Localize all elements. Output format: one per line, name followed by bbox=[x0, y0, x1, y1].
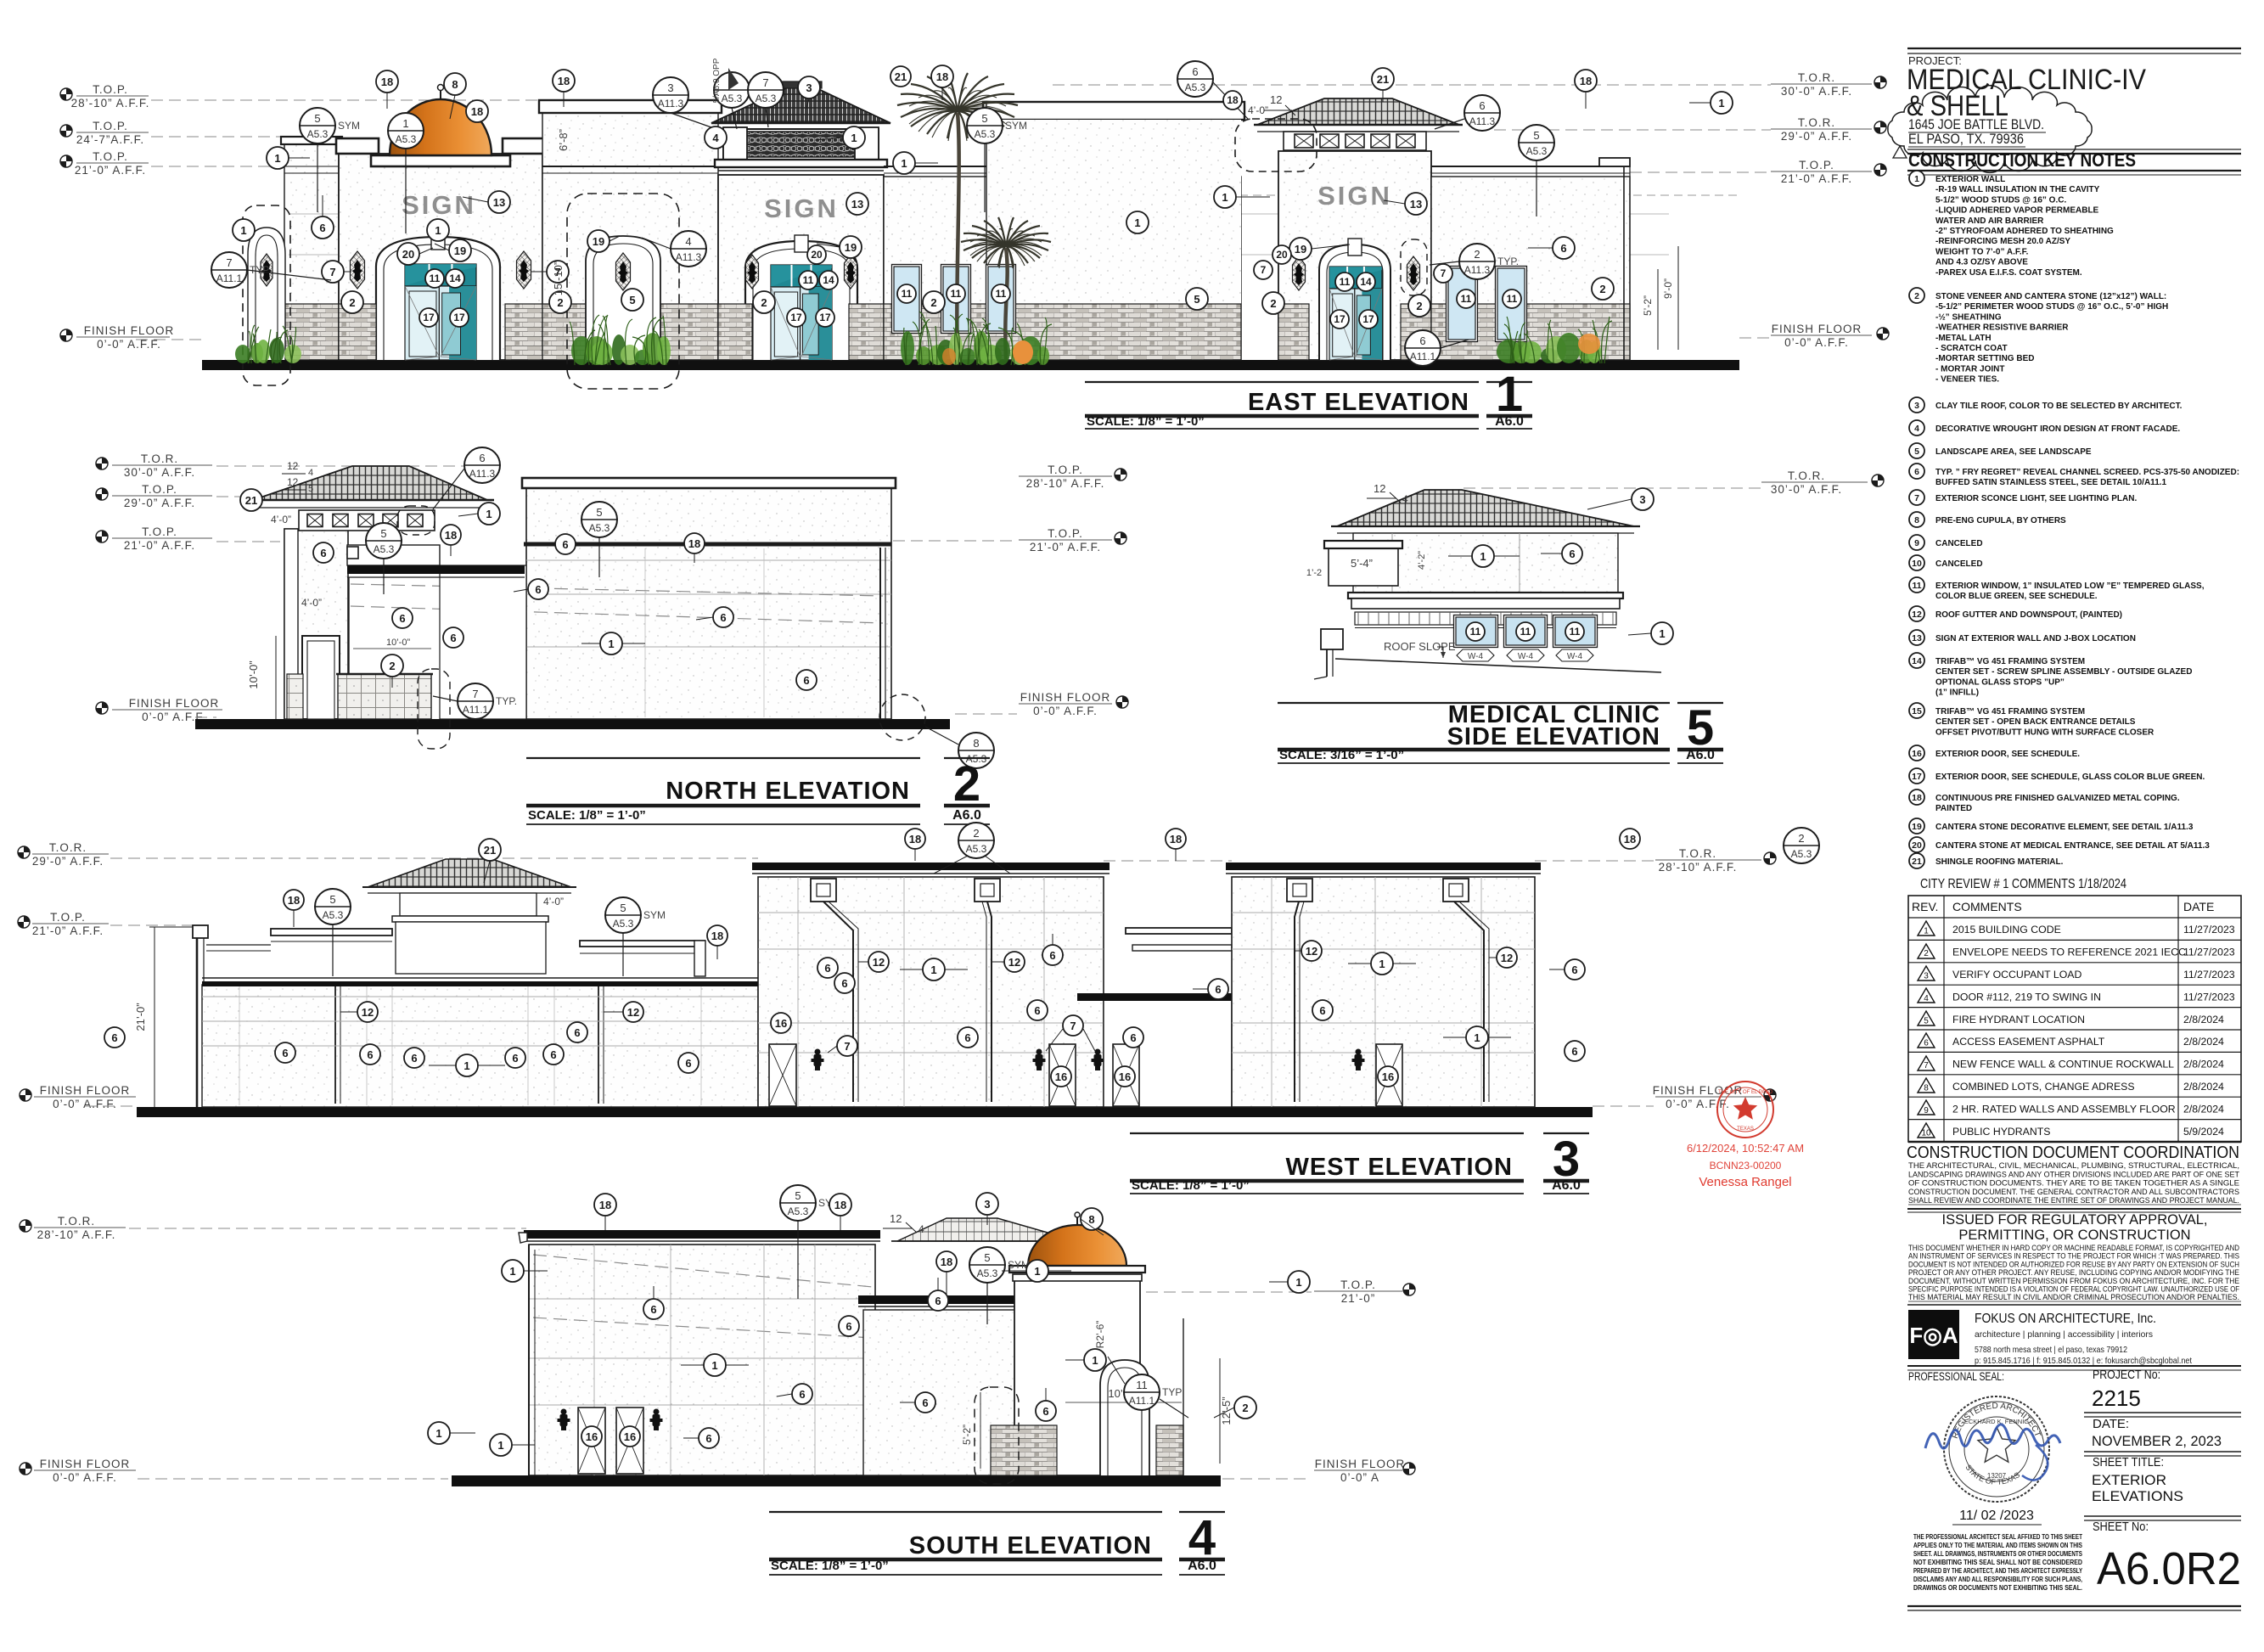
svg-text:29’-0” A.F.F.: 29’-0” A.F.F. bbox=[124, 497, 195, 509]
svg-text:4: 4 bbox=[1914, 424, 1919, 434]
svg-text:4: 4 bbox=[712, 132, 719, 144]
svg-text:3: 3 bbox=[984, 1198, 990, 1211]
svg-text:2: 2 bbox=[953, 756, 980, 812]
svg-text:6/12/2024, 10:52:47 AM: 6/12/2024, 10:52:47 AM bbox=[1687, 1142, 1804, 1155]
svg-text:11: 11 bbox=[1570, 626, 1581, 638]
svg-text:6: 6 bbox=[1049, 949, 1055, 962]
svg-text:12: 12 bbox=[1008, 956, 1020, 969]
svg-text:SIGN: SIGN bbox=[402, 190, 476, 220]
svg-text:A11.1: A11.1 bbox=[1129, 1395, 1155, 1407]
svg-text:5: 5 bbox=[1924, 1016, 1929, 1025]
svg-text:FINISH FLOOR: FINISH FLOOR bbox=[1020, 691, 1111, 704]
svg-text:WATER AND AIR BARRIER: WATER AND AIR BARRIER bbox=[1935, 216, 2044, 226]
svg-text:13: 13 bbox=[493, 196, 505, 209]
svg-text:A11.3: A11.3 bbox=[658, 98, 684, 110]
svg-text:5788 north mesa street |: 5788 north mesa street | el paso, texas … bbox=[1975, 1345, 2127, 1355]
svg-text:12: 12 bbox=[287, 476, 299, 488]
svg-text:16: 16 bbox=[1912, 749, 1922, 759]
svg-text:28’-10” A.F.F.: 28’-10” A.F.F. bbox=[1026, 477, 1105, 490]
svg-text:16: 16 bbox=[1055, 1070, 1067, 1083]
svg-text:SIDE ELEVATION: SIDE ELEVATION bbox=[1447, 723, 1660, 750]
svg-text:7: 7 bbox=[226, 256, 232, 269]
svg-text:A6.0: A6.0 bbox=[1188, 1559, 1216, 1573]
svg-text:WEST ELEVATION: WEST ELEVATION bbox=[1286, 1154, 1513, 1181]
svg-text:SCALE: 1/8” = 1’-0”: SCALE: 1/8” = 1’-0” bbox=[528, 808, 646, 823]
svg-text:FINISH FLOOR: FINISH FLOOR bbox=[84, 324, 175, 337]
svg-text:1: 1 bbox=[274, 152, 280, 165]
svg-text:4’-0”: 4’-0” bbox=[543, 896, 564, 907]
svg-text:SPECIFIC PURPOSE INTENDED IS A: SPECIFIC PURPOSE INTENDED IS A VIOLATION… bbox=[1908, 1285, 2240, 1294]
svg-text:A11.1: A11.1 bbox=[463, 704, 489, 716]
svg-text:EXTERIOR WALL: EXTERIOR WALL bbox=[1935, 175, 2005, 184]
svg-text:6: 6 bbox=[650, 1303, 656, 1316]
svg-text:6: 6 bbox=[685, 1057, 691, 1070]
svg-text:T.O.R.: T.O.R. bbox=[49, 841, 87, 854]
svg-text:T.O.R.: T.O.R. bbox=[141, 452, 178, 465]
svg-text:WEIGHT TO 7’-0” A.F.F.: WEIGHT TO 7’-0” A.F.F. bbox=[1935, 247, 2029, 256]
svg-text:DOCUMENT IS NOT INTENDED OR AU: DOCUMENT IS NOT INTENDED OR AUTHORIZED F… bbox=[1908, 1260, 2239, 1268]
svg-text:PRE-ENG CUPULA, BY OTHERS: PRE-ENG CUPULA, BY OTHERS bbox=[1935, 516, 2066, 525]
svg-text:12’-5”: 12’-5” bbox=[1220, 1396, 1233, 1424]
svg-text:18: 18 bbox=[1912, 793, 1922, 803]
svg-text:OFFSET PIVOT/BUTT HUNG WITH SU: OFFSET PIVOT/BUTT HUNG WITH SURFACE CLOS… bbox=[1935, 728, 2154, 737]
svg-text:CANTERA STONE DECORATIVE ELEME: CANTERA STONE DECORATIVE ELEMENT, SEE DE… bbox=[1935, 823, 2194, 832]
svg-text:A5.3: A5.3 bbox=[396, 133, 417, 145]
svg-text:T.O.P.: T.O.P. bbox=[93, 83, 128, 96]
svg-text:6: 6 bbox=[1914, 467, 1919, 477]
svg-text:5’-2”: 5’-2” bbox=[1642, 295, 1654, 316]
svg-text:1: 1 bbox=[711, 1359, 717, 1372]
svg-text:2/8/2024: 2/8/2024 bbox=[2183, 1103, 2224, 1115]
svg-text:EXTERIOR WINDOW, 1” INSULATED: EXTERIOR WINDOW, 1” INSULATED LOW ”E” TE… bbox=[1935, 582, 2205, 591]
svg-text:DISCLAIMS ANY AND ALL RESPONSI: DISCLAIMS ANY AND ALL RESPONSIBILITY FOR… bbox=[1913, 1576, 2082, 1583]
svg-text:T.O.P.: T.O.P. bbox=[142, 525, 177, 538]
svg-text:1: 1 bbox=[435, 224, 441, 237]
svg-text:FINISH FLOOR: FINISH FLOOR bbox=[40, 1084, 131, 1097]
svg-text:FOKUS ON ARCHITECTURE, Inc.: FOKUS ON ARCHITECTURE, Inc. bbox=[1975, 1312, 2156, 1326]
svg-text:2: 2 bbox=[1599, 283, 1605, 295]
svg-text:-LIQUID ADHERED VAPOR PERMEABL: -LIQUID ADHERED VAPOR PERMEABLE bbox=[1935, 206, 2099, 216]
svg-text:DRAWINGS OR DOCUMENTS NOT EXHI: DRAWINGS OR DOCUMENTS NOT EXHIBITING THI… bbox=[1913, 1584, 2082, 1592]
svg-text:11: 11 bbox=[1340, 276, 1351, 288]
svg-text:TRIFAB™ VG 451 FRAMING SYSTEM: TRIFAB™ VG 451 FRAMING SYSTEM bbox=[1935, 657, 2085, 666]
svg-text:6: 6 bbox=[1569, 548, 1575, 560]
svg-text:NOT EXHIBITING THIS SEAL SHALL: NOT EXHIBITING THIS SEAL SHALL NOT BE CO… bbox=[1913, 1559, 2082, 1566]
svg-text:A11.3: A11.3 bbox=[1469, 115, 1496, 127]
svg-text:16: 16 bbox=[775, 1017, 787, 1030]
svg-text:16: 16 bbox=[586, 1430, 598, 1443]
svg-text:12: 12 bbox=[1912, 610, 1922, 620]
svg-text:12: 12 bbox=[287, 460, 299, 472]
svg-text:21’-0” A.F.F.: 21’-0” A.F.F. bbox=[32, 924, 104, 937]
svg-text:12: 12 bbox=[890, 1212, 902, 1225]
svg-text:A5.3: A5.3 bbox=[1185, 81, 1206, 93]
svg-text:18: 18 bbox=[936, 70, 948, 83]
svg-text:COMBINED LOTS, CHANGE ADRESS: COMBINED LOTS, CHANGE ADRESS bbox=[1952, 1081, 2135, 1093]
svg-text:1: 1 bbox=[1034, 1265, 1040, 1278]
svg-text:28’-10” A.F.F.: 28’-10” A.F.F. bbox=[37, 1228, 116, 1241]
svg-text:NOVEMBER 2, 2023: NOVEMBER 2, 2023 bbox=[2092, 1433, 2222, 1449]
svg-text:EXTERIOR SCONCE LIGHT, SEE LIG: EXTERIOR SCONCE LIGHT, SEE LIGHTING PLAN… bbox=[1935, 494, 2137, 503]
svg-text:11/27/2023: 11/27/2023 bbox=[2183, 969, 2235, 981]
svg-text:EXTERIOR DOOR, SEE SCHEDULE.: EXTERIOR DOOR, SEE SCHEDULE. bbox=[1935, 750, 2080, 759]
svg-text:11: 11 bbox=[1136, 1379, 1148, 1391]
svg-text:17: 17 bbox=[819, 312, 831, 323]
svg-text:T.O.P.: T.O.P. bbox=[1048, 464, 1083, 476]
svg-text:DECORATIVE WROUGHT IRON DESIGN: DECORATIVE WROUGHT IRON DESIGN AT FRONT … bbox=[1935, 424, 2180, 434]
svg-text:0’-0” A.F.F.: 0’-0” A.F.F. bbox=[1666, 1098, 1730, 1110]
svg-text:BUFFED SATIN STAINLESS STEEL,: BUFFED SATIN STAINLESS STEEL, SEE DETAIL… bbox=[1935, 478, 2167, 487]
svg-text:1: 1 bbox=[497, 1439, 503, 1452]
svg-text:SYM: SYM bbox=[338, 120, 360, 132]
svg-text:A5.3: A5.3 bbox=[589, 522, 610, 534]
svg-text:1: 1 bbox=[1295, 1276, 1301, 1289]
svg-text:2: 2 bbox=[1416, 300, 1422, 312]
svg-text:3: 3 bbox=[667, 81, 673, 94]
svg-text:SCALE: 3/16” = 1’-0”: SCALE: 3/16” = 1’-0” bbox=[1279, 748, 1404, 762]
svg-text:A6.0R2: A6.0R2 bbox=[2097, 1543, 2241, 1594]
svg-text:A5.3: A5.3 bbox=[975, 128, 996, 140]
svg-text:6: 6 bbox=[1479, 99, 1485, 112]
svg-text:12: 12 bbox=[1501, 952, 1513, 964]
svg-text:3: 3 bbox=[1924, 972, 1929, 981]
svg-text:10’-0”: 10’-0” bbox=[247, 660, 260, 688]
svg-text:18: 18 bbox=[599, 1199, 611, 1211]
svg-text:18: 18 bbox=[471, 105, 483, 118]
svg-text:5: 5 bbox=[620, 902, 626, 914]
svg-text:6: 6 bbox=[535, 583, 541, 596]
svg-text:9: 9 bbox=[1924, 1106, 1929, 1115]
svg-text:29’-0” A.F.F.: 29’-0” A.F.F. bbox=[1781, 130, 1852, 143]
svg-text:CONTINUOUS PRE FINISHED GALVAN: CONTINUOUS PRE FINISHED GALVANIZED METAL… bbox=[1935, 794, 2180, 803]
svg-text:BCNN23-00200: BCNN23-00200 bbox=[1710, 1160, 1782, 1172]
svg-text:12: 12 bbox=[873, 956, 885, 969]
svg-text:6: 6 bbox=[399, 612, 405, 625]
svg-text:2 HR. RATED WALLS AND ASSEMBLY: 2 HR. RATED WALLS AND ASSEMBLY FLOOR bbox=[1952, 1103, 2176, 1115]
svg-text:T.O.R.: T.O.R. bbox=[1788, 469, 1825, 482]
svg-text:5-1/2” WOOD STUDS @ 16” O.C.: 5-1/2” WOOD STUDS @ 16” O.C. bbox=[1935, 195, 2066, 205]
svg-text:DATE:: DATE: bbox=[2093, 1417, 2129, 1431]
svg-text:- MORTAR JOINT: - MORTAR JOINT bbox=[1935, 364, 2004, 374]
svg-text:SCALE: 1/8” = 1’-0”: SCALE: 1/8” = 1’-0” bbox=[1087, 414, 1205, 429]
svg-text:6: 6 bbox=[1042, 1405, 1048, 1418]
svg-text:1: 1 bbox=[1659, 627, 1665, 640]
svg-text:6: 6 bbox=[319, 222, 325, 234]
svg-text:-WEATHER RESISTIVE BARRIER: -WEATHER RESISTIVE BARRIER bbox=[1935, 323, 2069, 333]
svg-text:19: 19 bbox=[845, 241, 857, 254]
svg-text:2: 2 bbox=[973, 827, 979, 840]
svg-text:6: 6 bbox=[1419, 334, 1425, 347]
svg-text:12: 12 bbox=[1306, 945, 1317, 958]
svg-text:2/8/2024: 2/8/2024 bbox=[2183, 1081, 2224, 1093]
svg-text:REV.: REV. bbox=[1912, 900, 1938, 913]
svg-text:5: 5 bbox=[795, 1189, 801, 1202]
svg-text:OPTIONAL GLASS STOPS ”UP”: OPTIONAL GLASS STOPS ”UP” bbox=[1935, 677, 2065, 687]
svg-text:5/9/2024: 5/9/2024 bbox=[2183, 1126, 2224, 1138]
svg-text:SIGN: SIGN bbox=[1317, 181, 1392, 211]
svg-text:A5.3: A5.3 bbox=[966, 843, 987, 855]
svg-text:6: 6 bbox=[803, 674, 809, 687]
svg-text:6: 6 bbox=[479, 452, 485, 464]
svg-text:11/ 02 /2023: 11/ 02 /2023 bbox=[1959, 1509, 2034, 1523]
svg-text:14: 14 bbox=[449, 273, 461, 284]
svg-text:2: 2 bbox=[389, 660, 395, 672]
svg-text:13: 13 bbox=[1410, 198, 1422, 211]
svg-text:4’-2”: 4’-2” bbox=[1417, 551, 1427, 570]
svg-text:2: 2 bbox=[1242, 1402, 1248, 1414]
svg-text:FINISH FLOOR: FINISH FLOOR bbox=[1772, 323, 1862, 335]
svg-text:W-4: W-4 bbox=[1518, 652, 1534, 661]
svg-text:W-4: W-4 bbox=[1468, 652, 1484, 661]
svg-text:1: 1 bbox=[435, 1427, 441, 1440]
svg-text:6: 6 bbox=[282, 1047, 288, 1059]
svg-text:6: 6 bbox=[512, 1052, 518, 1065]
svg-text:2015 BUILDING CODE: 2015 BUILDING CODE bbox=[1952, 924, 2061, 936]
svg-text:F◎A: F◎A bbox=[1909, 1323, 1958, 1348]
svg-text:21’-0”: 21’-0” bbox=[134, 1003, 147, 1031]
svg-text:11: 11 bbox=[430, 273, 441, 284]
svg-text:6: 6 bbox=[1130, 1031, 1136, 1044]
svg-text:6: 6 bbox=[550, 1048, 556, 1061]
svg-text:CONSTRUCTION DOCUMENT COORDINA: CONSTRUCTION DOCUMENT COORDINATION bbox=[1907, 1143, 2239, 1162]
svg-text:APPLIES ONLY TO THE MATERIAL A: APPLIES ONLY TO THE MATERIAL AND ITEMS S… bbox=[1913, 1542, 2083, 1549]
svg-text:TEXAS: TEXAS bbox=[1737, 1127, 1754, 1132]
svg-text:ROOF SLOPE: ROOF SLOPE bbox=[1384, 640, 1456, 653]
svg-text:14: 14 bbox=[1360, 276, 1372, 288]
svg-text:7: 7 bbox=[1070, 1020, 1076, 1032]
svg-text:21’-0” A.F.F.: 21’-0” A.F.F. bbox=[75, 164, 146, 177]
svg-text:11/27/2023: 11/27/2023 bbox=[2183, 991, 2235, 1003]
svg-text:11: 11 bbox=[1470, 626, 1481, 638]
svg-text:2215: 2215 bbox=[2092, 1385, 2141, 1411]
svg-text:12: 12 bbox=[1374, 482, 1385, 495]
svg-text:5: 5 bbox=[596, 506, 602, 519]
svg-text:6: 6 bbox=[964, 1031, 970, 1044]
svg-text:(1” INFILL): (1” INFILL) bbox=[1935, 688, 1979, 698]
svg-text:2: 2 bbox=[1914, 291, 1919, 301]
svg-text:4’-0”: 4’-0” bbox=[271, 514, 291, 525]
svg-text:ROOF GUTTER AND DOWNSPOUT, (PA: ROOF GUTTER AND DOWNSPOUT, (PAINTED) bbox=[1935, 610, 2122, 620]
svg-text:2/8/2024: 2/8/2024 bbox=[2183, 1059, 2224, 1070]
svg-text:R2’-6”: R2’-6” bbox=[1094, 1321, 1106, 1349]
svg-text:21’-0”: 21’-0” bbox=[1341, 1292, 1376, 1305]
svg-text:11/27/2023: 11/27/2023 bbox=[2183, 947, 2235, 958]
svg-text:6: 6 bbox=[705, 1432, 711, 1445]
svg-text:5: 5 bbox=[314, 112, 320, 125]
svg-text:-MORTAR SETTING BED: -MORTAR SETTING BED bbox=[1935, 354, 2034, 363]
svg-text:2: 2 bbox=[930, 296, 936, 309]
svg-text:6: 6 bbox=[1192, 65, 1198, 78]
svg-text:EXTERIOR: EXTERIOR bbox=[2092, 1472, 2166, 1488]
svg-text:18: 18 bbox=[834, 1199, 846, 1211]
svg-text:21’-0” A.F.F.: 21’-0” A.F.F. bbox=[124, 539, 195, 552]
svg-text:13: 13 bbox=[851, 198, 863, 211]
svg-text:1: 1 bbox=[240, 224, 246, 237]
svg-text:2: 2 bbox=[1798, 832, 1804, 845]
svg-text:THIS DOCUMENT WHETHER IN HARD: THIS DOCUMENT WHETHER IN HARD COPY OR MA… bbox=[1908, 1244, 2239, 1252]
svg-text:11: 11 bbox=[803, 274, 814, 286]
svg-text:6: 6 bbox=[1560, 242, 1566, 255]
svg-text:T.O.P.: T.O.P. bbox=[1048, 527, 1083, 540]
svg-text:A5.3: A5.3 bbox=[323, 909, 344, 921]
svg-text:TYP.: TYP. bbox=[496, 695, 517, 707]
svg-text:15’-10”: 15’-10” bbox=[552, 261, 565, 295]
svg-text:PAINTED: PAINTED bbox=[1935, 804, 1972, 813]
svg-text:SHALL REVIEW AND COORDINATE TH: SHALL REVIEW AND COORDINATE THE ENTIRE S… bbox=[1908, 1196, 2239, 1205]
svg-text:10: 10 bbox=[1921, 1128, 1931, 1138]
svg-text:1: 1 bbox=[1718, 97, 1724, 110]
svg-text:2: 2 bbox=[1474, 248, 1480, 261]
svg-text:CANCELED: CANCELED bbox=[1935, 559, 1983, 569]
svg-text:6: 6 bbox=[824, 962, 830, 975]
svg-text:FINISH FLOOR: FINISH FLOOR bbox=[1315, 1458, 1406, 1470]
svg-text:architecture | planning: architecture | planning | accessibility … bbox=[1975, 1329, 2153, 1340]
svg-text:6: 6 bbox=[841, 977, 847, 990]
svg-text:30’-0” A.F.F.: 30’-0” A.F.F. bbox=[124, 466, 195, 479]
svg-text:A6.0: A6.0 bbox=[1686, 748, 1715, 762]
svg-text:24’-7”A.F.F.: 24’-7”A.F.F. bbox=[76, 133, 144, 146]
svg-text:PROJECT OR ANY OTHER PROJECT.: PROJECT OR ANY OTHER PROJECT. ANY REUSE,… bbox=[1908, 1268, 2239, 1277]
svg-text:11: 11 bbox=[1461, 293, 1472, 305]
svg-text:1: 1 bbox=[1924, 927, 1929, 936]
svg-text:- SCRATCH COAT: - SCRATCH COAT bbox=[1935, 344, 2008, 353]
svg-text:CONSTRUCTION KEY NOTES: CONSTRUCTION KEY NOTES bbox=[1908, 149, 2136, 171]
svg-text:2: 2 bbox=[761, 296, 767, 309]
svg-text:-REINFORCING MESH 20.0 AZ/SY: -REINFORCING MESH 20.0 AZ/SY bbox=[1935, 237, 2070, 246]
svg-text:THE PROFESSIONAL ARCHITECT SEA: THE PROFESSIONAL ARCHITECT SEAL AFFIXED … bbox=[1913, 1533, 2082, 1541]
svg-text:5/A6.0 OPP: 5/A6.0 OPP bbox=[712, 58, 722, 103]
svg-text:2: 2 bbox=[1270, 297, 1276, 310]
svg-text:11: 11 bbox=[996, 288, 1007, 300]
svg-text:0’-0” A.F.F.: 0’-0” A.F.F. bbox=[53, 1098, 117, 1110]
svg-text:20: 20 bbox=[402, 248, 414, 261]
svg-text:20: 20 bbox=[1276, 249, 1288, 261]
svg-text:8: 8 bbox=[1924, 1084, 1929, 1093]
svg-text:8: 8 bbox=[1914, 515, 1919, 525]
svg-text:9: 9 bbox=[1914, 538, 1919, 548]
svg-text:A11.1: A11.1 bbox=[216, 273, 243, 284]
svg-text:-½” SHEATHING: -½” SHEATHING bbox=[1935, 312, 2002, 322]
svg-text:6: 6 bbox=[111, 1031, 117, 1044]
svg-text:5: 5 bbox=[1914, 447, 1919, 457]
svg-text:6: 6 bbox=[1924, 1039, 1929, 1048]
svg-text:21’-0” A.F.F.: 21’-0” A.F.F. bbox=[1030, 541, 1101, 553]
svg-text:17: 17 bbox=[790, 312, 802, 323]
svg-text:SIGN: SIGN bbox=[764, 194, 839, 223]
svg-text:LANDSCAPE AREA, SEE LANDSCAPE: LANDSCAPE AREA, SEE LANDSCAPE bbox=[1935, 447, 2092, 457]
svg-text:A11.3: A11.3 bbox=[1464, 264, 1491, 276]
svg-text:FINISH FLOOR: FINISH FLOOR bbox=[40, 1458, 131, 1470]
svg-text:6: 6 bbox=[1034, 1004, 1040, 1017]
svg-text:7: 7 bbox=[1261, 264, 1267, 276]
svg-text:2/8/2024: 2/8/2024 bbox=[2183, 1014, 2224, 1025]
svg-text:17: 17 bbox=[1912, 772, 1922, 782]
svg-text:7: 7 bbox=[762, 76, 768, 89]
svg-text:A5.3: A5.3 bbox=[374, 543, 395, 555]
svg-text:4: 4 bbox=[685, 235, 691, 248]
svg-text:19: 19 bbox=[593, 235, 604, 248]
svg-text:18: 18 bbox=[1624, 833, 1636, 846]
svg-text:1: 1 bbox=[930, 964, 936, 976]
svg-text:A5.3: A5.3 bbox=[756, 93, 777, 104]
svg-text:6: 6 bbox=[1215, 983, 1221, 996]
svg-text:SHEET. ALL DRAWINGS, INSTRUMEN: SHEET. ALL DRAWINGS, INSTRUMENTS OR OTHE… bbox=[1913, 1550, 2083, 1558]
svg-text:A6.0: A6.0 bbox=[1552, 1178, 1581, 1193]
svg-text:TYP. ” FRY REGRET” REVEAL CHAN: TYP. ” FRY REGRET” REVEAL CHANNEL SCREED… bbox=[1935, 468, 2239, 477]
svg-text:6’-8”: 6’-8” bbox=[557, 129, 570, 151]
svg-text:12: 12 bbox=[1270, 93, 1282, 106]
svg-text:12: 12 bbox=[362, 1006, 374, 1019]
svg-text:16: 16 bbox=[624, 1430, 636, 1443]
svg-text:8: 8 bbox=[1088, 1213, 1094, 1226]
svg-text:3: 3 bbox=[1914, 401, 1919, 411]
svg-text:6: 6 bbox=[1571, 1045, 1577, 1058]
svg-text:CLAY TILE ROOF, COLOR TO BE SE: CLAY TILE ROOF, COLOR TO BE SELECTED BY … bbox=[1935, 402, 2183, 411]
svg-text:5: 5 bbox=[1533, 129, 1539, 142]
svg-text:CANCELED: CANCELED bbox=[1935, 539, 1983, 548]
svg-text:16: 16 bbox=[1119, 1070, 1131, 1083]
svg-text:T.O.R.: T.O.R. bbox=[1798, 116, 1835, 129]
svg-text:EAST ELEVATION: EAST ELEVATION bbox=[1248, 389, 1469, 416]
svg-text:DOCUMENT, WITHOUT WRITTEN PER: DOCUMENT, WITHOUT WRITTEN PERMISSION FRO… bbox=[1908, 1277, 2239, 1285]
svg-text:20: 20 bbox=[811, 249, 823, 261]
svg-text:30’-0” A.F.F.: 30’-0” A.F.F. bbox=[1771, 483, 1842, 496]
svg-text:A5.3: A5.3 bbox=[307, 128, 329, 140]
svg-text:7: 7 bbox=[1914, 493, 1919, 503]
svg-text:SCALE: 1/8” = 1’-0”: SCALE: 1/8” = 1’-0” bbox=[1132, 1178, 1250, 1193]
svg-text:PUBLIC HYDRANTS: PUBLIC HYDRANTS bbox=[1952, 1126, 2050, 1138]
svg-text:- VENEER TIES.: - VENEER TIES. bbox=[1935, 375, 1999, 385]
svg-text:THE CITY OF EL PASO: THE CITY OF EL PASO bbox=[1718, 1090, 1772, 1095]
svg-text:AN INSTRUMENT OF SERVICES IN R: AN INSTRUMENT OF SERVICES IN RESPECT TO … bbox=[1908, 1252, 2239, 1261]
svg-text:3: 3 bbox=[806, 81, 812, 94]
svg-text:T.O.P.: T.O.P. bbox=[1799, 159, 1834, 171]
svg-text:T.O.P.: T.O.P. bbox=[93, 120, 128, 132]
svg-text:18: 18 bbox=[381, 76, 393, 88]
svg-text:4: 4 bbox=[308, 468, 313, 478]
svg-text:18: 18 bbox=[1227, 94, 1239, 106]
svg-text:A11.1: A11.1 bbox=[1410, 351, 1436, 362]
svg-text:1: 1 bbox=[1379, 958, 1385, 970]
svg-text:17: 17 bbox=[423, 312, 435, 323]
svg-text:A11.3: A11.3 bbox=[469, 468, 496, 480]
svg-text:2: 2 bbox=[1924, 949, 1929, 958]
svg-text:17: 17 bbox=[453, 312, 465, 323]
svg-text:T.O.P.: T.O.P. bbox=[142, 483, 177, 496]
svg-text:EXTERIOR DOOR, SEE SCHEDULE, G: EXTERIOR DOOR, SEE SCHEDULE, GLASS COLOR… bbox=[1935, 773, 2205, 782]
svg-text:14: 14 bbox=[1912, 656, 1922, 666]
svg-text:4: 4 bbox=[1924, 994, 1929, 1003]
svg-text:6: 6 bbox=[720, 611, 726, 624]
svg-text:T.O.R.: T.O.R. bbox=[58, 1215, 95, 1228]
svg-text:18: 18 bbox=[711, 930, 723, 942]
svg-text:T.O.P.: T.O.P. bbox=[1340, 1278, 1376, 1291]
svg-text:1: 1 bbox=[509, 1265, 515, 1278]
svg-text:5: 5 bbox=[1194, 293, 1199, 306]
svg-text:5: 5 bbox=[308, 484, 313, 494]
svg-text:FIRE HYDRANT LOCATION: FIRE HYDRANT LOCATION bbox=[1952, 1014, 2085, 1025]
svg-text:ISSUED FOR REGULATORY APPROVAL: ISSUED FOR REGULATORY APPROVAL, bbox=[1942, 1212, 2208, 1228]
svg-text:1: 1 bbox=[1092, 1354, 1098, 1367]
svg-text:SHEET TITLE:: SHEET TITLE: bbox=[2093, 1455, 2164, 1469]
svg-text:21: 21 bbox=[895, 70, 907, 83]
svg-text:4: 4 bbox=[919, 1223, 924, 1235]
svg-text:-R-19 WALL INSULATION IN THE C: -R-19 WALL INSULATION IN THE CAVITY bbox=[1935, 185, 2100, 194]
svg-text:COMMENTS: COMMENTS bbox=[1952, 900, 2022, 913]
svg-text:11: 11 bbox=[951, 288, 962, 300]
svg-text:6: 6 bbox=[450, 632, 456, 644]
svg-text:PERMITTING, OR CONSTRUCTION: PERMITTING, OR CONSTRUCTION bbox=[1958, 1228, 2190, 1243]
